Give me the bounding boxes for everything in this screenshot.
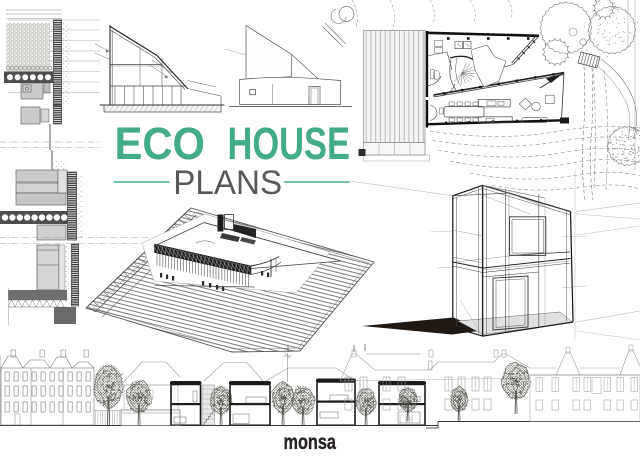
svg-text:monsa: monsa [284,430,337,454]
svg-text:ECO: ECO [115,118,206,169]
svg-text:PLANS: PLANS [173,164,282,202]
svg-text:HOUSE: HOUSE [228,118,351,169]
